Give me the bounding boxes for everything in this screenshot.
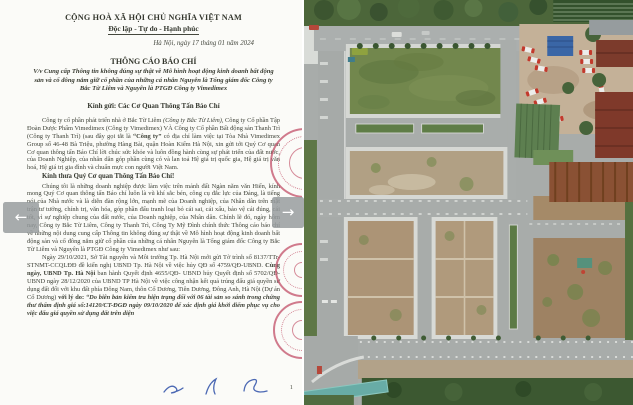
left-arrow-icon: ← — [15, 210, 28, 225]
document-title: THÔNG CÁO BÁO CHÍ — [27, 57, 280, 66]
aerial-photo-land-plots — [304, 0, 633, 405]
salutation-line: Kính gửi: Các Cơ Quan Thông Tấn Báo Chí — [27, 102, 280, 110]
paragraph-3-text: Ngày 29/10/2021, Sở Tài nguyên và Môi tr… — [27, 254, 280, 269]
paragraph-1: Công ty cổ phần phát triển nhà ở Bắc Từ … — [27, 117, 280, 172]
carousel-next-button[interactable]: → — [272, 197, 304, 228]
page-number: 1 — [290, 384, 293, 391]
carousel-prev-button[interactable]: ← — [3, 202, 39, 233]
document-page: CỘNG HOÀ XÃ HỘI CHỦ NGHĨA VIỆT NAM Độc l… — [0, 0, 302, 317]
paragraph-2-heading: Kính thưa Quý Cơ quan Thông Tấn Báo Chí! — [27, 173, 280, 181]
right-arrow-icon: → — [282, 205, 295, 220]
signature-initials — [158, 375, 288, 399]
paragraph-2: Chúng tôi là những doanh nghiệp được làm… — [27, 183, 280, 254]
article-image-gallery: CỘNG HOÀ XÃ HỘI CHỦ NGHĨA VIỆT NAM Độc l… — [0, 0, 633, 405]
paragraph-3: Ngày 29/10/2021, Sở Tài nguyên và Môi tr… — [27, 254, 280, 317]
press-release-document: CỘNG HOÀ XÃ HỘI CHỦ NGHĨA VIỆT NAM Độc l… — [0, 0, 302, 405]
national-header: CỘNG HOÀ XÃ HỘI CHỦ NGHĨA VIỆT NAM — [27, 13, 280, 22]
aerial-photo-image — [304, 0, 633, 405]
national-motto-text: Độc lập - Tự do - Hạnh phúc — [108, 24, 198, 35]
dateline: Hà Nội, ngày 17 tháng 01 năm 2024 — [27, 40, 280, 47]
paragraph-1-text: Công ty cổ phần phát triển nhà ở Bắc Từ … — [42, 117, 163, 124]
paragraph-1-italic: (Công ty Bắc Từ Liêm), — [163, 117, 224, 124]
paragraph-1-bold: “Công ty” — [133, 133, 162, 140]
national-motto: Độc lập - Tự do - Hạnh phúc — [27, 24, 280, 33]
document-subject: V/v Cung cấp Thông tin không đúng sự thậ… — [27, 68, 280, 94]
paragraph-3-bold: với lý do: — [58, 294, 86, 301]
